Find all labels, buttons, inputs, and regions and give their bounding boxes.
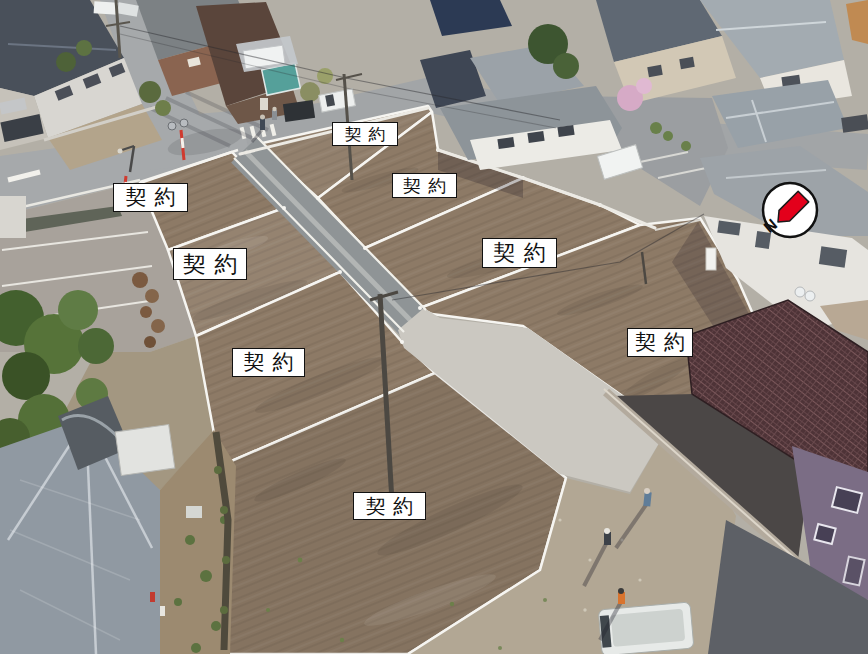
gas-cylinder — [795, 287, 805, 297]
garden-box — [186, 506, 202, 518]
small-building — [0, 196, 26, 238]
white-shed — [115, 424, 175, 475]
traffic-mirror — [180, 119, 188, 127]
door — [260, 98, 268, 110]
garden-person-red — [150, 592, 155, 602]
white-van-bottom — [598, 602, 694, 654]
aerial-photo-canvas: N — [0, 0, 868, 654]
aerial-photo-subdivision: N 契約 契約 契約 契約 契約 契約 契約 契約 — [0, 0, 868, 654]
gas-cylinder — [805, 291, 815, 301]
traffic-mirror — [168, 122, 176, 130]
garden-person-white — [160, 606, 165, 616]
white-car-top — [94, 1, 119, 15]
person-intersection-2 — [272, 107, 277, 120]
water-heater — [706, 248, 716, 270]
north-compass-icon: N — [761, 183, 817, 237]
